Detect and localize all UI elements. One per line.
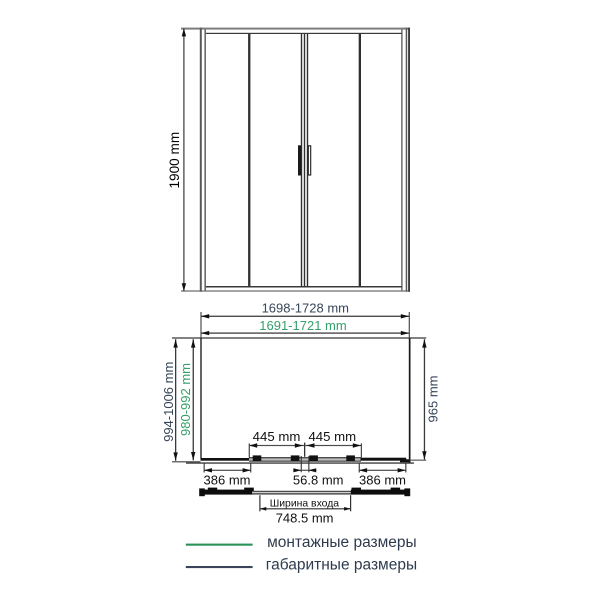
svg-text:965 mm: 965 mm (425, 376, 440, 423)
svg-text:монтажные размеры: монтажные размеры (267, 534, 417, 551)
svg-text:Ширина входа: Ширина входа (270, 498, 340, 509)
svg-text:386 mm: 386 mm (204, 473, 251, 488)
svg-text:445 mm: 445 mm (253, 429, 301, 444)
svg-text:1900 mm: 1900 mm (167, 132, 182, 189)
svg-text:748.5 mm: 748.5 mm (276, 511, 334, 526)
svg-text:габаритные размеры: габаритные размеры (266, 557, 417, 574)
svg-text:1698-1728 mm: 1698-1728 mm (262, 301, 349, 316)
svg-text:386 mm: 386 mm (359, 473, 406, 488)
svg-text:445 mm: 445 mm (308, 429, 356, 444)
svg-text:994-1006 mm: 994-1006 mm (161, 362, 176, 442)
svg-text:1691-1721 mm: 1691-1721 mm (259, 318, 346, 333)
svg-text:980-992 mm: 980-992 mm (178, 363, 193, 436)
svg-text:56.8 mm: 56.8 mm (293, 473, 344, 488)
